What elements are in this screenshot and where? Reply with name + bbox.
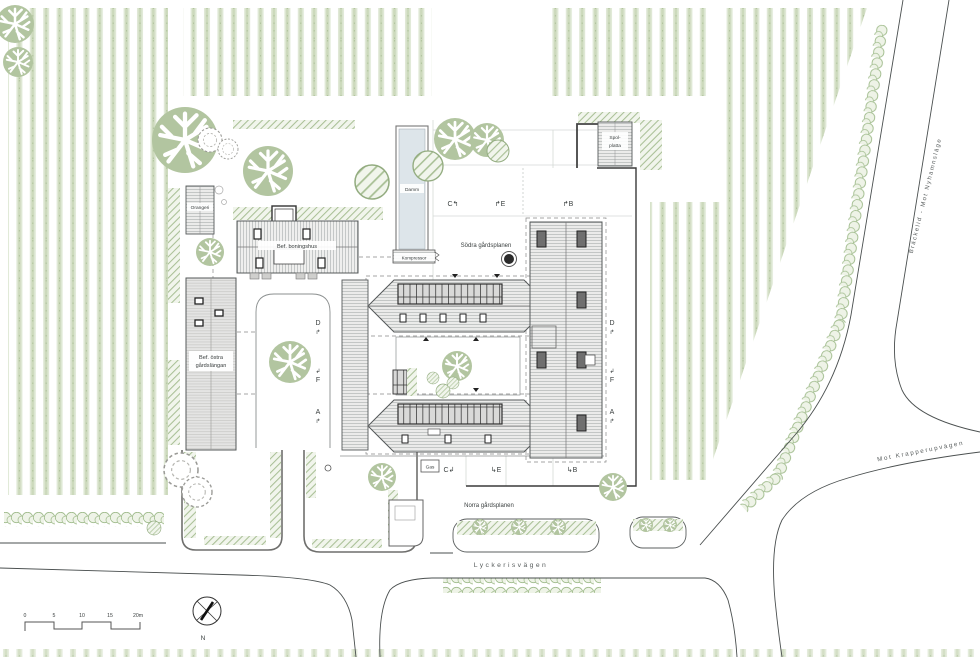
section-a-left-arrow: ↱ <box>315 418 320 425</box>
label-brackelid: Bräckelid - Mot Nyhamnsläge <box>909 137 944 254</box>
section-f-right: F <box>610 377 614 384</box>
section-d-right-arrow: ↱ <box>609 329 614 336</box>
section-e-top: ↱E <box>495 200 506 208</box>
section-c-bottom: C↲ <box>444 466 455 474</box>
label-spolplatta-line2: platta <box>609 143 621 149</box>
section-b-top: ↱B <box>563 200 574 208</box>
label-spolplatta-line1: Spol- <box>609 135 621 141</box>
scale-tick-5: 5 <box>53 613 56 619</box>
road-brackelid-east-edge <box>894 0 980 432</box>
section-b-bottom: ↳B <box>567 466 578 474</box>
scale-tick-0: 0 <box>24 613 27 619</box>
section-d-right: D <box>609 320 614 327</box>
hedgerow-junction <box>770 317 848 480</box>
scale-bar: 0 5 10 15 20m <box>24 613 143 631</box>
label-lyckerisvagen: Lyckerisvägen <box>474 562 548 569</box>
section-d-left: D <box>315 320 320 327</box>
label-damm: Damm <box>405 187 419 193</box>
scale-tick-20m: 20m <box>133 613 143 619</box>
field-south-edge <box>0 649 980 657</box>
section-e-bottom: ↳E <box>491 466 502 474</box>
hedgerow-southwest <box>4 512 164 527</box>
label-gas: Gas <box>426 465 435 471</box>
section-d-left-arrow: ↱ <box>315 329 320 336</box>
label-orangeri: Orangeri <box>191 205 210 211</box>
field-west <box>8 8 168 495</box>
section-c-top: C↰ <box>448 200 459 208</box>
field-northwest <box>183 8 432 96</box>
scale-tick-15: 15 <box>107 613 113 619</box>
compass-needle <box>201 602 213 620</box>
label-norra-gardsplanen: Norra gårdsplanen <box>464 502 514 509</box>
label-sodra-gardsplanen: Södra gårdsplanen <box>461 242 512 249</box>
section-a-right: A <box>610 409 615 416</box>
building-south-wing <box>368 400 550 452</box>
label-kompressor: Kompressor <box>402 256 427 261</box>
skylight-strip-south <box>398 404 502 424</box>
section-f-left-arrow: ↲ <box>315 368 320 375</box>
compass: N <box>193 597 221 642</box>
building-west-wing <box>342 280 368 450</box>
hedgerow-lyckerisvagen <box>443 578 601 593</box>
section-f-right-arrow: ↲ <box>609 368 614 375</box>
road-krapperup-south-edge <box>774 452 980 657</box>
label-krapperup: Mot Krapperupvägen <box>877 440 965 464</box>
section-f-left: F <box>316 377 320 384</box>
courtyard-stair <box>393 368 417 396</box>
field-north <box>550 8 712 96</box>
road-driveway-east-edge <box>380 578 432 657</box>
well <box>504 254 514 264</box>
label-ostra-line1: Bef. östra <box>199 355 224 361</box>
site-plan: Orangeri Bef. boningshus Bef. östra gård… <box>0 0 980 657</box>
scale-tick-10: 10 <box>79 613 85 619</box>
compass-north-label: N <box>201 635 206 642</box>
section-a-left: A <box>316 409 321 416</box>
section-a-right-arrow: ↱ <box>609 418 614 425</box>
building-east-wing <box>530 222 602 458</box>
label-boningshus: Bef. boningshus <box>277 244 317 250</box>
building-southwest-annex <box>389 500 423 546</box>
label-ostra-line2: gårdslängan <box>196 362 227 369</box>
small-well <box>325 465 331 471</box>
building-north-wing <box>368 280 550 332</box>
site-plan-drawing: Orangeri Bef. boningshus Bef. östra gård… <box>0 0 980 657</box>
skylight-strip-north <box>398 284 502 304</box>
